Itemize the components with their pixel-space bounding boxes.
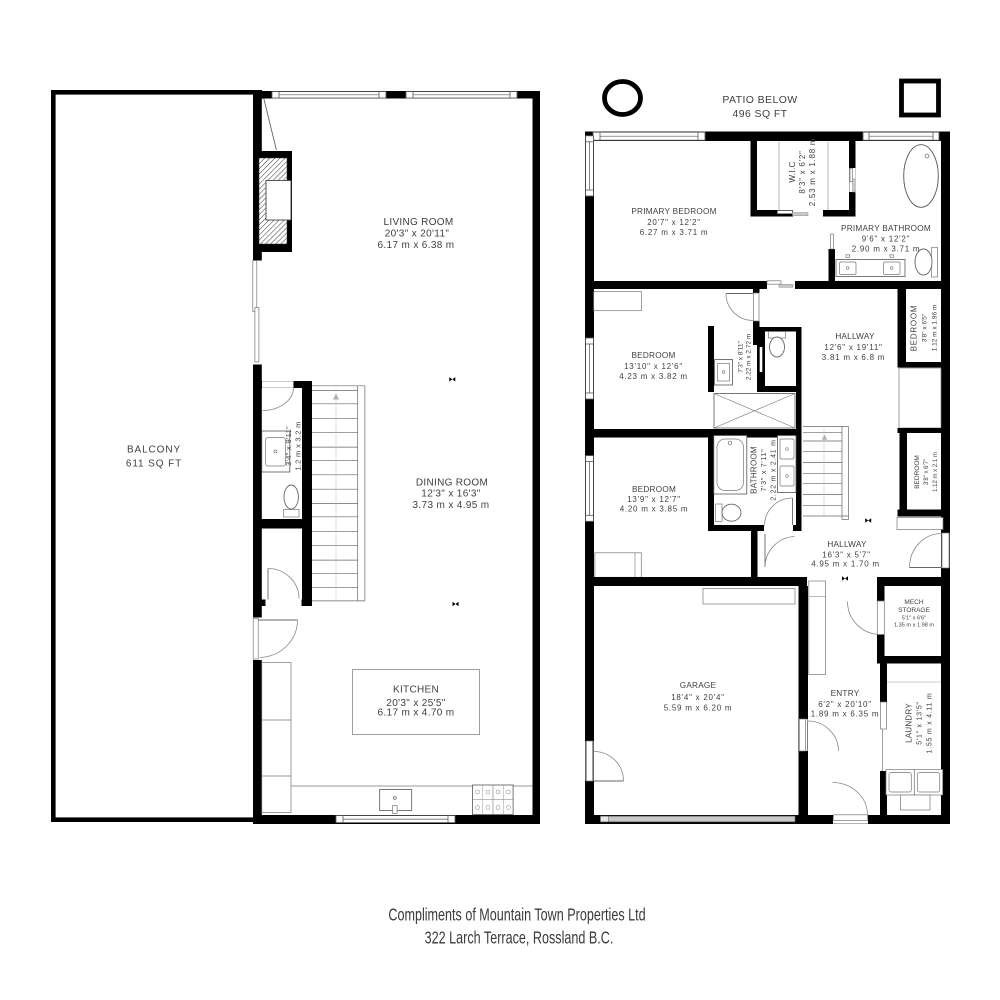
svg-text:6.17 m x 6.38 m: 6.17 m x 6.38 m xyxy=(378,240,455,251)
svg-text:BATHROOM: BATHROOM xyxy=(750,446,759,494)
svg-text:6.27 m x 3.71 m: 6.27 m x 3.71 m xyxy=(640,228,709,237)
svg-text:5.59 m x 6.20 m: 5.59 m x 6.20 m xyxy=(664,704,733,713)
svg-text:ENTRY: ENTRY xyxy=(831,689,860,698)
svg-text:2.53 m x 1.88 m: 2.53 m x 1.88 m xyxy=(808,138,817,207)
svg-text:611 SQ FT: 611 SQ FT xyxy=(126,458,182,469)
svg-text:12'6" x 19'11": 12'6" x 19'11" xyxy=(824,343,882,352)
svg-text:322 Larch Terrace, Rossland B.: 322 Larch Terrace, Rossland B.C. xyxy=(425,929,614,949)
svg-text:5'1" x 6'6": 5'1" x 6'6" xyxy=(902,616,926,622)
svg-text:KITCHEN: KITCHEN xyxy=(393,685,439,696)
svg-text:16'3" x 5'7": 16'3" x 5'7" xyxy=(822,550,870,559)
svg-text:PRIMARY BEDROOM: PRIMARY BEDROOM xyxy=(631,207,716,216)
svg-text:HALLWAY: HALLWAY xyxy=(835,332,875,341)
svg-text:496 SQ FT: 496 SQ FT xyxy=(733,108,788,120)
svg-text:LIVING ROOM: LIVING ROOM xyxy=(384,217,454,228)
svg-text:9'6" x 12'2": 9'6" x 12'2" xyxy=(862,235,910,244)
svg-text:13'9" x 12'7": 13'9" x 12'7" xyxy=(627,495,681,504)
svg-text:6'2" x 20'10": 6'2" x 20'10" xyxy=(818,700,872,709)
svg-text:MECH: MECH xyxy=(904,599,923,606)
svg-text:1.89 m x 6.35 m: 1.89 m x 6.35 m xyxy=(811,710,880,719)
svg-text:PRIMARY BATHROOM: PRIMARY BATHROOM xyxy=(841,224,931,233)
svg-text:7'3" x 7'11": 7'3" x 7'11" xyxy=(761,449,768,492)
svg-text:20'3" x 20'11": 20'3" x 20'11" xyxy=(385,228,450,239)
svg-text:4.95 m x 1.70 m: 4.95 m x 1.70 m xyxy=(811,559,880,568)
svg-text:8'3" x 6'2": 8'3" x 6'2" xyxy=(798,150,807,193)
svg-text:18'4" x 20'4": 18'4" x 20'4" xyxy=(671,693,725,702)
svg-text:3'8" x 6'7": 3'8" x 6'7" xyxy=(924,459,930,485)
svg-text:PATIO BELOW: PATIO BELOW xyxy=(722,94,797,106)
svg-text:1.12 m x 2.1 m: 1.12 m x 2.1 m xyxy=(933,452,939,492)
svg-text:HALLWAY: HALLWAY xyxy=(827,540,867,549)
svg-text:2.90 m x 3.71 m: 2.90 m x 3.71 m xyxy=(852,245,921,254)
svg-text:20'7" x 12'2": 20'7" x 12'2" xyxy=(647,218,701,227)
svg-text:1.12 m x 1.96 m: 1.12 m x 1.96 m xyxy=(932,305,939,352)
svg-text:1.55 m x 4.11 m: 1.55 m x 4.11 m xyxy=(927,693,934,754)
svg-text:6.17 m x 4.70 m: 6.17 m x 4.70 m xyxy=(378,708,455,719)
svg-text:W.I.C: W.I.C xyxy=(788,161,797,182)
svg-text:DINING ROOM: DINING ROOM xyxy=(416,478,488,489)
svg-text:13'10" x 12'6": 13'10" x 12'6" xyxy=(624,362,683,371)
svg-text:12'3" x 16'3": 12'3" x 16'3" xyxy=(421,489,480,500)
svg-text:LAUNDRY: LAUNDRY xyxy=(905,703,914,743)
svg-text:3'8" x 6'5": 3'8" x 6'5" xyxy=(922,313,929,342)
svg-text:Compliments of Mountain Town P: Compliments of Mountain Town Properties … xyxy=(388,906,645,926)
svg-text:2.22 m x 2.41 m: 2.22 m x 2.41 m xyxy=(771,439,778,500)
svg-text:BEDROOM: BEDROOM xyxy=(914,455,921,489)
svg-text:7'3" x 8'11": 7'3" x 8'11" xyxy=(738,341,745,373)
svg-text:3.81 m x 6.8 m: 3.81 m x 6.8 m xyxy=(822,353,885,362)
svg-text:STORAGE: STORAGE xyxy=(898,607,930,614)
svg-text:4.20 m x 3.85 m: 4.20 m x 3.85 m xyxy=(620,505,689,514)
svg-text:BALCONY: BALCONY xyxy=(127,444,181,455)
svg-text:3'4" x 9'11": 3'4" x 9'11" xyxy=(284,426,293,466)
svg-text:1.2 m x 3.2 m: 1.2 m x 3.2 m xyxy=(293,421,302,470)
svg-text:5'1" x 13'5": 5'1" x 13'5" xyxy=(917,701,924,745)
svg-text:BEDROOM: BEDROOM xyxy=(632,485,676,494)
svg-text:BEDROOM: BEDROOM xyxy=(631,351,675,360)
svg-text:BEDROOM: BEDROOM xyxy=(910,305,919,352)
svg-text:GARAGE: GARAGE xyxy=(680,681,717,690)
svg-text:1.35 m x 1.98 m: 1.35 m x 1.98 m xyxy=(894,623,934,629)
svg-text:3.73 m x 4.95 m: 3.73 m x 4.95 m xyxy=(413,500,490,511)
svg-text:2.22 m x 2.72 m: 2.22 m x 2.72 m xyxy=(746,334,753,381)
svg-text:4.23 m x 3.82 m: 4.23 m x 3.82 m xyxy=(619,372,688,381)
